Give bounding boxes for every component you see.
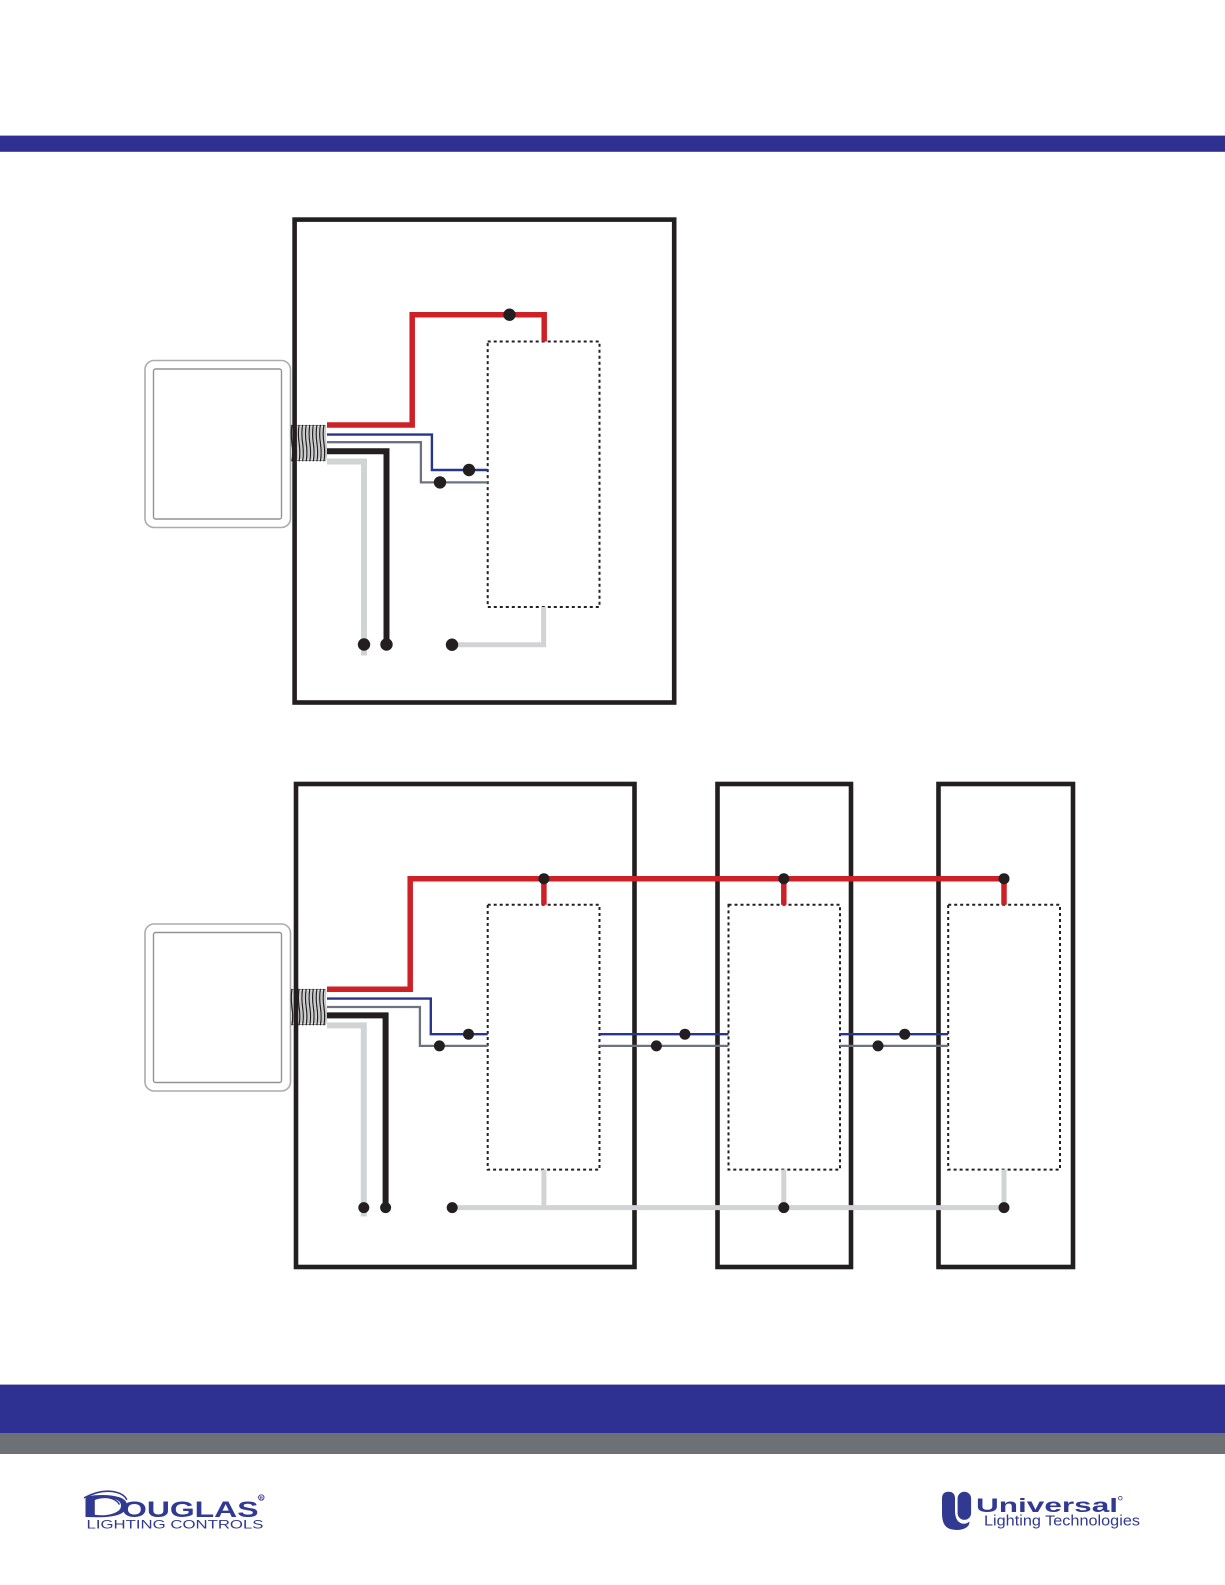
svg-text:Lighting Technologies: Lighting Technologies — [984, 1514, 1140, 1530]
svg-text:LIGHTING CONTROLS: LIGHTING CONTROLS — [87, 1517, 264, 1531]
